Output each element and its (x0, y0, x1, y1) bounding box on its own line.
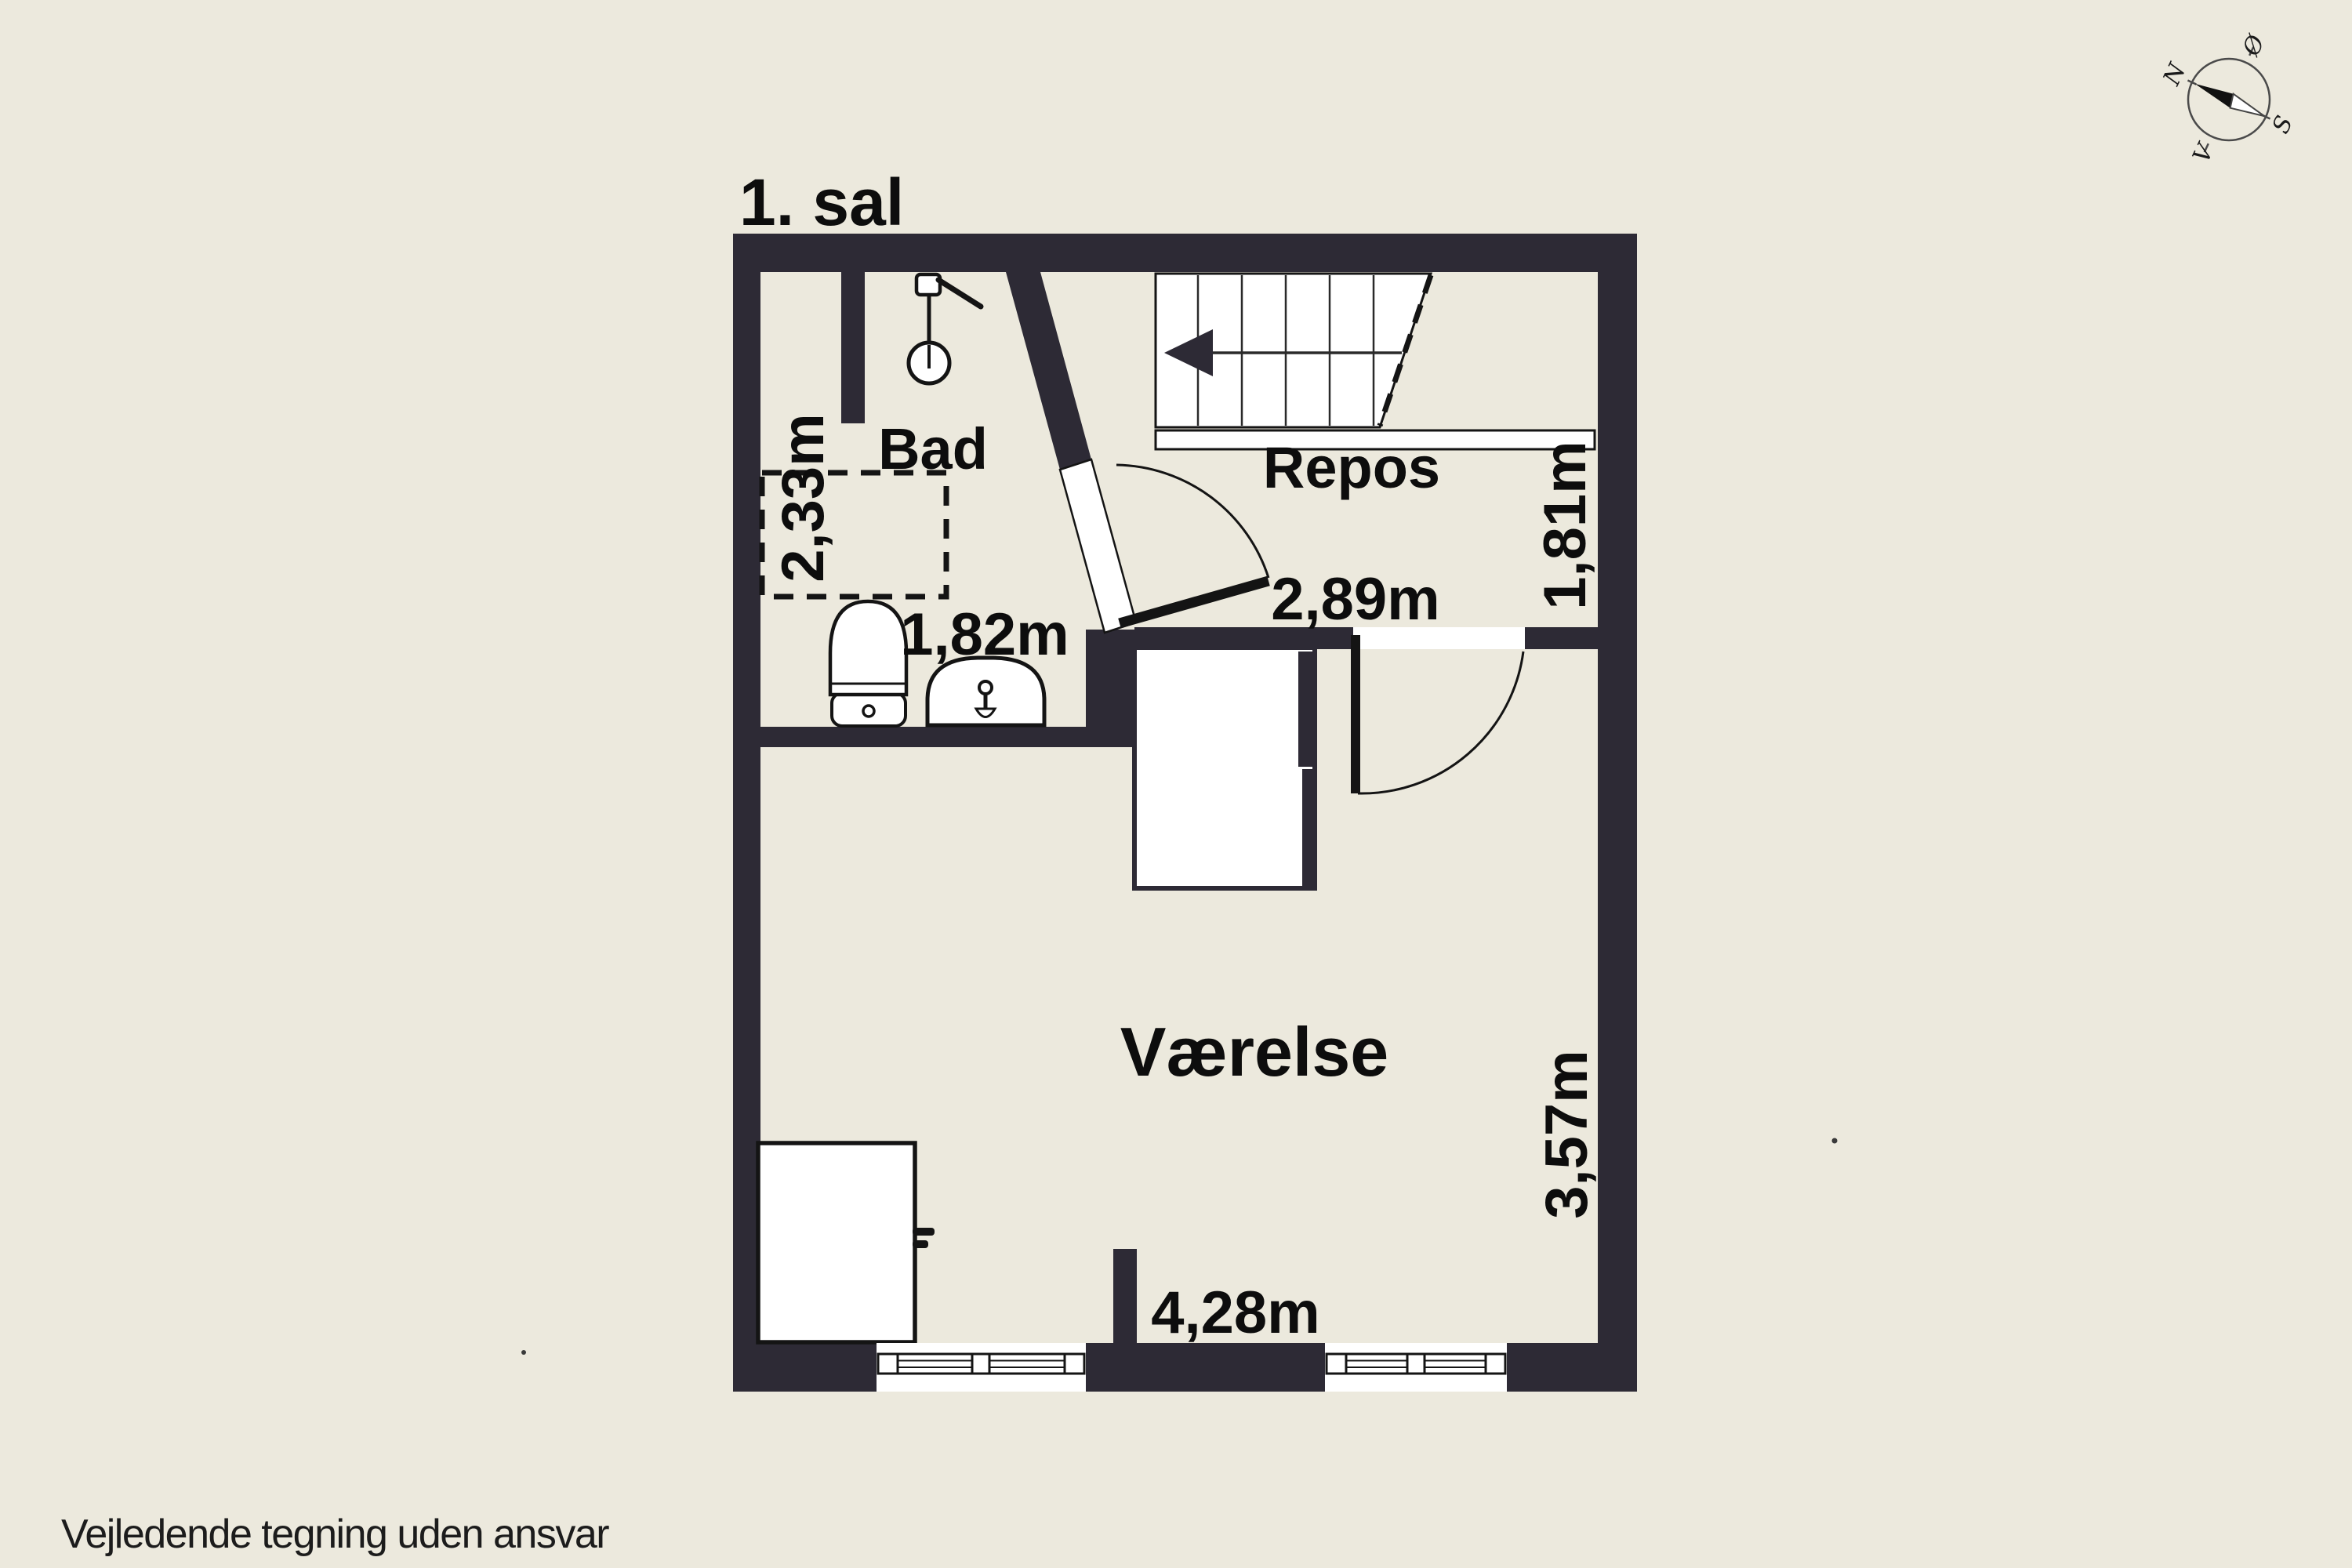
room-label-landing: Repos (1263, 435, 1440, 500)
compass-label-south: S (2267, 111, 2299, 137)
toilet-icon (830, 601, 906, 726)
dim-bathroom-width: 2,33m (770, 413, 837, 583)
door-bathroom-swing-arc (1116, 465, 1269, 578)
compass-label-north: N (2158, 58, 2192, 90)
wall-right (1598, 234, 1637, 1392)
stray-dot (521, 1350, 526, 1355)
wall-window-stub (1113, 1249, 1137, 1345)
compass-label-east: Ø (2238, 30, 2271, 60)
door-bathroom-leaf (1120, 581, 1269, 623)
compass-label-west: V (2187, 138, 2220, 167)
door-bedroom (1353, 627, 1525, 793)
stairs (1156, 274, 1595, 449)
door-bathroom-opening (1060, 459, 1136, 633)
stray-dot (1832, 1138, 1838, 1144)
wall-landing-right (1525, 627, 1598, 649)
door-bedroom-swing-arc (1358, 652, 1523, 793)
door-bathroom (1060, 459, 1269, 633)
window-left (877, 1343, 1086, 1392)
wall-bottom-center-segment (1086, 1343, 1325, 1392)
floor-plan-page: N Ø S V 1. sal Bad Repos Værelse 2,33m 1… (0, 0, 2352, 1568)
dim-bathroom-depth: 1,82m (900, 601, 1069, 668)
dim-landing-depth: 1,81m (1532, 441, 1599, 610)
dim-bedroom-depth: 3,57m (1534, 1050, 1600, 1219)
wall-bottom-right-segment (1507, 1343, 1637, 1392)
furniture-box (758, 1143, 935, 1342)
wall-bath-bottom (759, 727, 1134, 747)
plan-title: 1. sal (739, 165, 904, 239)
dim-bedroom-width: 4,28m (1151, 1279, 1320, 1346)
wardrobe-door-bar (1298, 652, 1313, 767)
footer-disclaimer: Vejledende tegning uden ansvar (61, 1512, 609, 1557)
wall-top (733, 234, 1637, 272)
window-right (1325, 1343, 1507, 1392)
room-label-bedroom: Værelse (1120, 1013, 1388, 1091)
wardrobe (1134, 648, 1317, 888)
shower-icon (909, 274, 981, 383)
floor-plan-canvas: N Ø S V 1. sal Bad Repos Værelse 2,33m 1… (0, 0, 2352, 1568)
room-label-bathroom: Bad (878, 416, 988, 481)
dim-landing-width: 2,89m (1271, 566, 1440, 633)
compass-needle-icon (2192, 78, 2267, 123)
wall-slanted (1006, 272, 1091, 470)
compass-icon: N Ø S V (2134, 5, 2325, 192)
wardrobe-door-bar (1302, 769, 1317, 886)
wall-bottom-left-segment (733, 1343, 877, 1392)
wall-door-chunk (1086, 630, 1134, 747)
wall-bath-stub (841, 272, 865, 423)
